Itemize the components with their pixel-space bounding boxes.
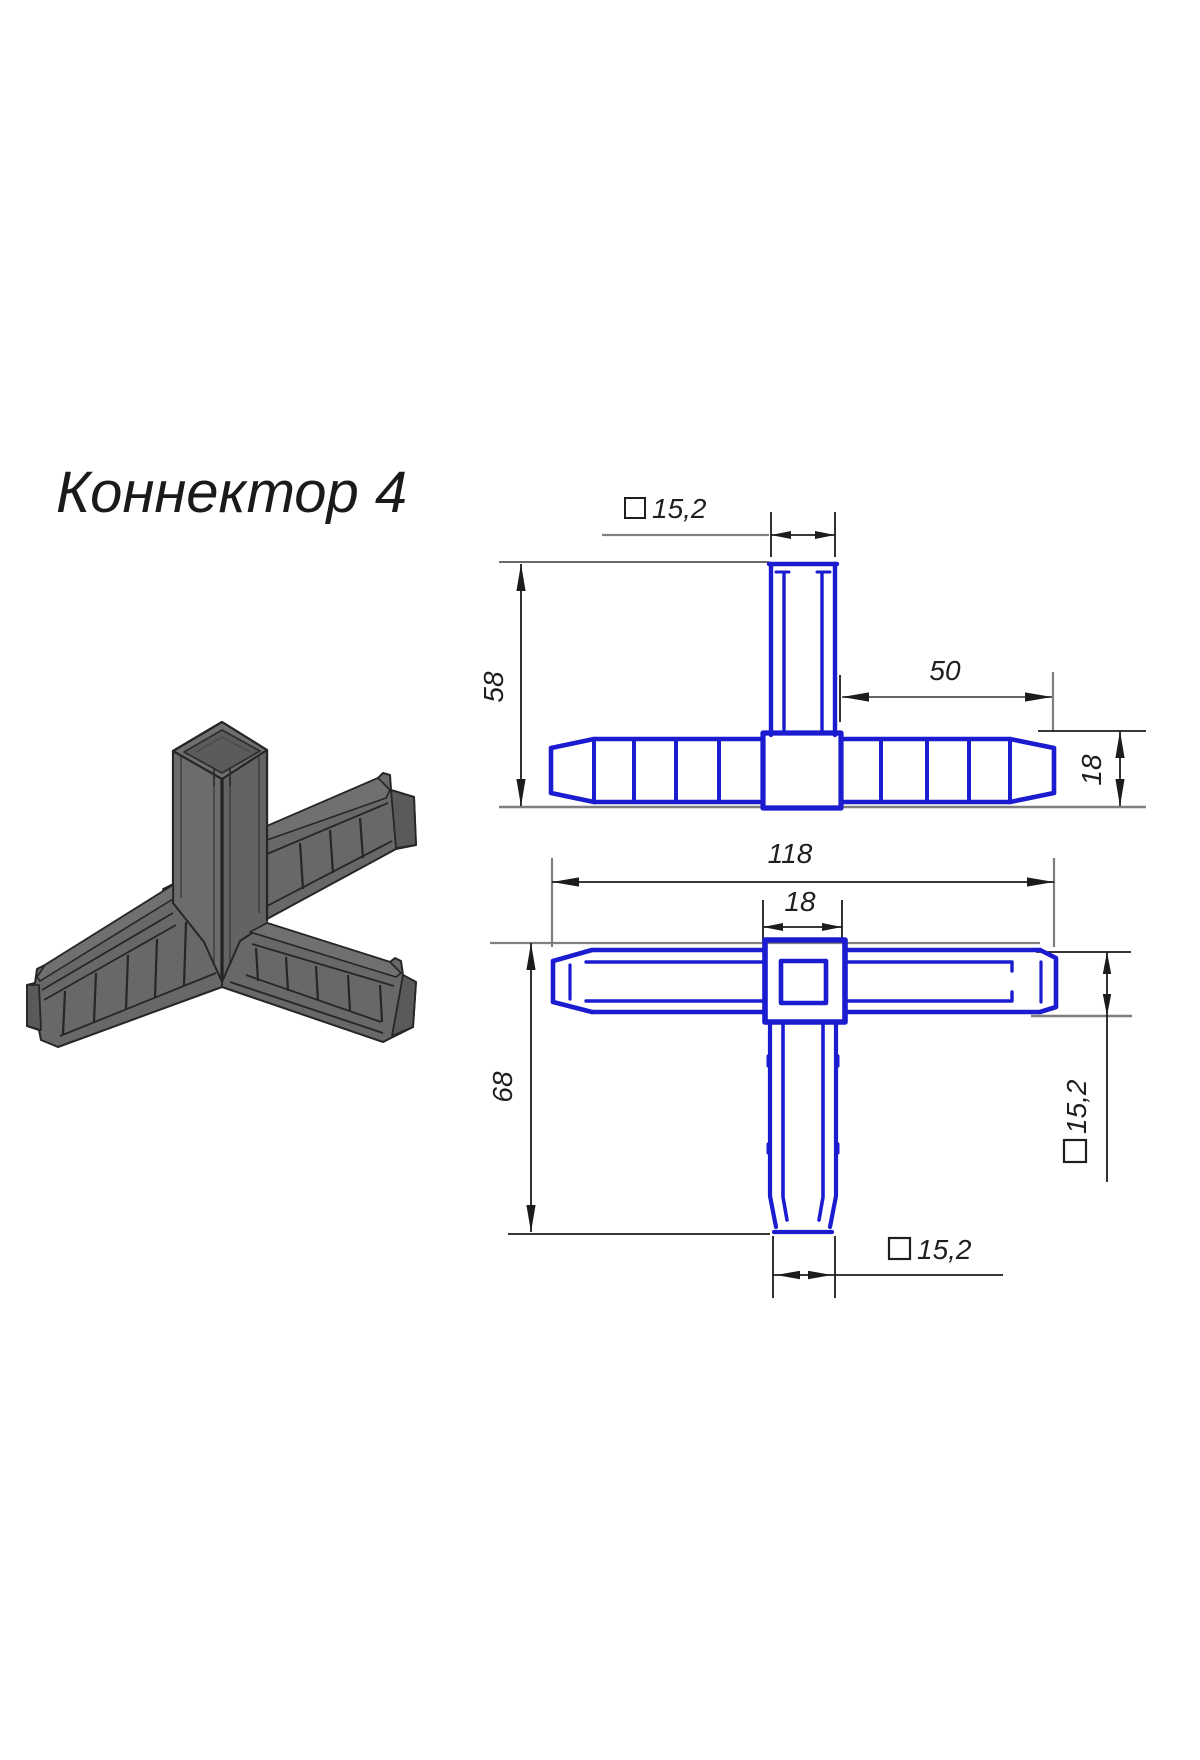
svg-text:18: 18 bbox=[1076, 754, 1107, 786]
svg-text:50: 50 bbox=[929, 655, 961, 686]
svg-text:18: 18 bbox=[784, 886, 816, 917]
svg-text:118: 118 bbox=[768, 838, 813, 869]
svg-text:15,2: 15,2 bbox=[917, 1234, 972, 1265]
svg-text:58: 58 bbox=[478, 671, 509, 703]
svg-text:68: 68 bbox=[487, 1071, 518, 1103]
svg-text:15,2: 15,2 bbox=[652, 493, 707, 524]
svg-text:Коннектор 4: Коннектор 4 bbox=[56, 460, 407, 525]
svg-text:15,2: 15,2 bbox=[1061, 1079, 1092, 1134]
